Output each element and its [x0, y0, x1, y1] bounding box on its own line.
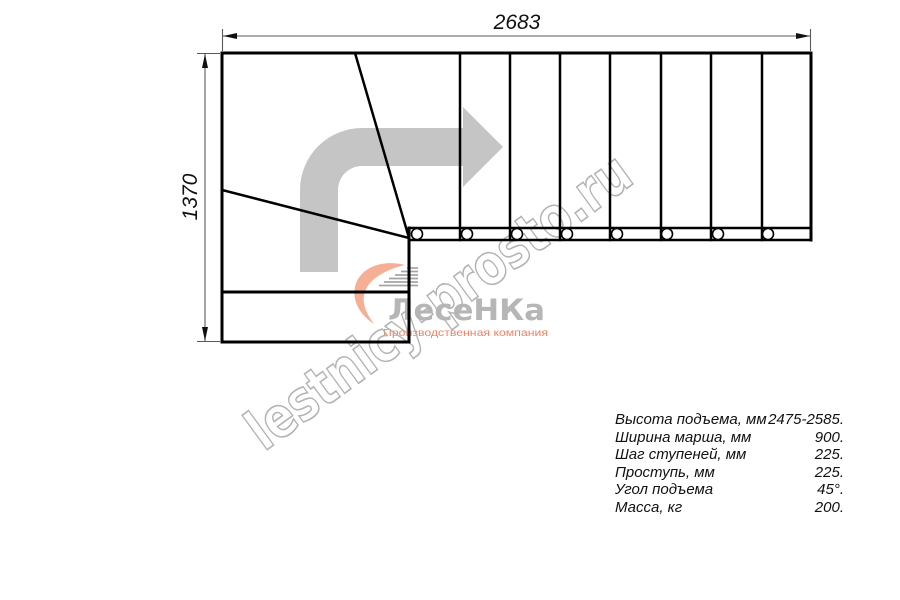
- circle-marker: [462, 229, 473, 240]
- spec-row: Шаг ступеней, мм 225.: [615, 446, 844, 464]
- circle-marker: [412, 229, 423, 240]
- arrowhead-up: [202, 54, 208, 68]
- spec-value: 200.: [815, 499, 844, 517]
- arrowhead-down: [202, 327, 208, 341]
- spec-value: 225.: [815, 446, 844, 464]
- spec-label: Шаг ступеней, мм: [615, 446, 746, 464]
- spec-row: Проступь, мм 225.: [615, 464, 844, 482]
- arrowhead-right: [796, 33, 810, 39]
- spec-label: Высота подъема, мм: [615, 411, 767, 429]
- specs-table: Высота подъема, мм 2475-2585. Ширина мар…: [615, 411, 844, 517]
- circle-marker: [512, 229, 523, 240]
- circle-marker: [763, 229, 774, 240]
- circle-marker: [612, 229, 623, 240]
- spec-label: Проступь, мм: [615, 464, 715, 482]
- diagonal-watermark-text: lestnicy-prosto.ru: [234, 140, 644, 463]
- spec-row: Масса, кг 200.: [615, 499, 844, 517]
- spec-row: Ширина марша, мм 900.: [615, 429, 844, 447]
- circle-marker: [662, 229, 673, 240]
- spec-value: 45°.: [817, 481, 844, 499]
- spec-label: Масса, кг: [615, 499, 682, 517]
- dimension-label-height: 1370: [179, 173, 202, 220]
- dimension-label-width: 2683: [493, 11, 541, 34]
- spec-value: 900.: [815, 429, 844, 447]
- spec-label: Ширина марша, мм: [615, 429, 751, 447]
- staircase-drawing-page: ЛесеНКа Производственная компания lestni…: [0, 0, 900, 600]
- spec-value: 2475-2585.: [768, 411, 844, 429]
- spec-value: 225.: [815, 464, 844, 482]
- spec-label: Угол подъема: [615, 481, 713, 499]
- arrowhead-left: [223, 33, 237, 39]
- spec-row: Угол подъема 45°.: [615, 481, 844, 499]
- circle-marker: [562, 229, 573, 240]
- spec-row: Высота подъема, мм 2475-2585.: [615, 411, 844, 429]
- circle-marker: [713, 229, 724, 240]
